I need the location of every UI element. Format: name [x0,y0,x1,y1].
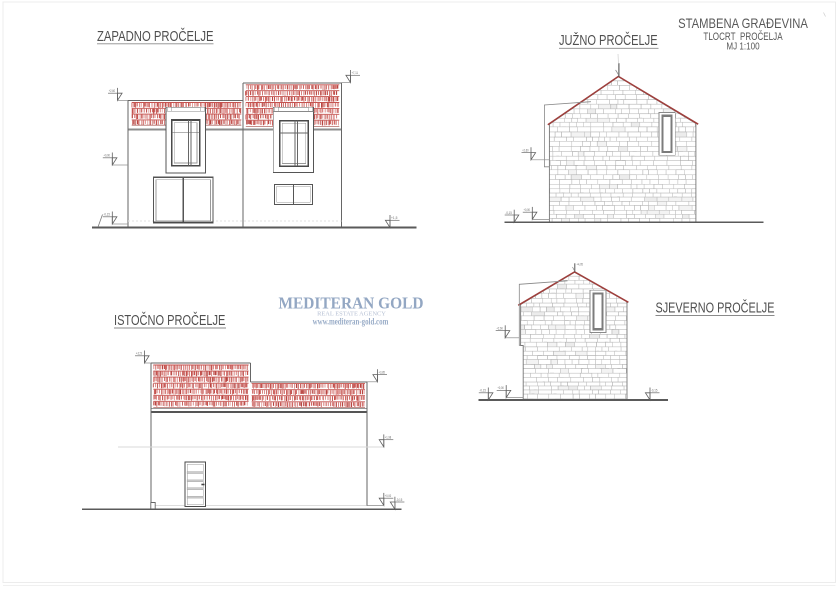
svg-text:+0,00: +0,00 [524,207,531,212]
svg-text:+4,05: +4,05 [577,262,584,267]
svg-text:+0,00: +0,00 [104,153,111,158]
svg-text:MJ 1:100: MJ 1:100 [726,42,760,53]
svg-text:-0,15: -0,15 [505,210,512,215]
svg-text:+3,85: +3,85 [379,369,386,374]
svg-text:ZAPADNO PROČELJE: ZAPADNO PROČELJE [97,28,214,45]
svg-text:+0,00: +0,00 [497,385,504,390]
svg-text:+2,60: +2,60 [522,147,529,152]
svg-text:+2,5: +2,5 [136,351,143,356]
svg-text:+7,11: +7,11 [352,70,359,75]
svg-text:-0,15: -0,15 [651,388,658,393]
svg-text:+1,98: +1,98 [385,435,392,440]
svg-text:JUŽNO PROČELJE: JUŽNO PROČELJE [559,32,658,49]
svg-text:+2,60: +2,60 [496,325,503,330]
svg-text:-0,15: -0,15 [480,388,487,393]
svg-text:SJEVERNO PROČELJE: SJEVERNO PROČELJE [656,300,775,317]
svg-text:-0,15: -0,15 [104,212,111,217]
svg-text:-0,15: -0,15 [396,497,403,502]
svg-text:STAMBENA GRAĐEVINA: STAMBENA GRAĐEVINA [678,15,808,31]
svg-text:+0,00: +0,00 [385,493,392,498]
svg-text:ISTOČNO PROČELJE: ISTOČNO PROČELJE [114,312,225,329]
svg-text:+1,5: +1,5 [391,215,398,220]
svg-text:www.mediteran-gold.com: www.mediteran-gold.com [313,317,389,327]
svg-text:+2,60: +2,60 [109,88,116,93]
